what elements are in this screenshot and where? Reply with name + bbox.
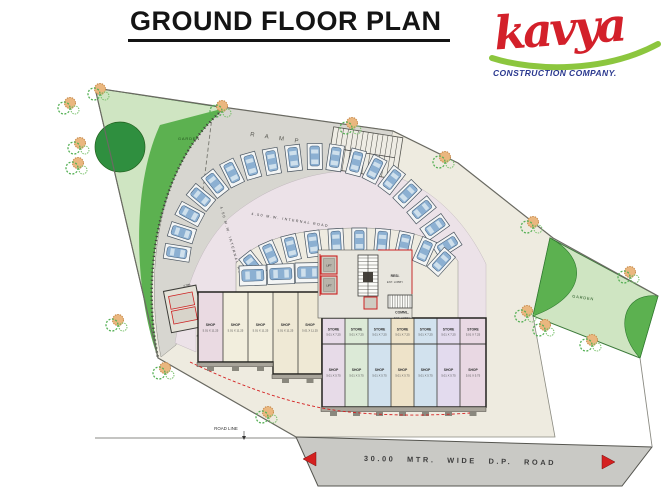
svg-text:5.01 X 5.75: 5.01 X 5.75 xyxy=(441,374,456,378)
tree-icon xyxy=(58,98,79,115)
svg-text:STORE: STORE xyxy=(420,328,432,332)
shop-unit: SHOP 5.01 X 11.25 xyxy=(223,292,248,362)
svg-text:5.01 X 7.25: 5.01 X 7.25 xyxy=(349,333,364,337)
store-unit: STORE 5.01 X 7.25 xyxy=(322,318,345,344)
dp-road: 30.00 MTR. WIDE D.P. ROAD xyxy=(296,437,652,486)
parking-stall xyxy=(239,265,267,286)
shop-unit: SHOP 5.01 X 5.75 xyxy=(345,344,368,407)
tree-icon xyxy=(106,315,127,332)
svg-text:STORE: STORE xyxy=(374,328,386,332)
svg-text:5.01 X 7.25: 5.01 X 7.25 xyxy=(466,333,481,337)
shop-unit: SHOP 5.01 X 11.25 xyxy=(273,292,298,374)
svg-text:SHOP: SHOP xyxy=(421,368,431,372)
shop-unit: SHOP 5.01 X 5.75 xyxy=(391,344,414,407)
company-logo: kavya CONSTRUCTION COMPANY. xyxy=(488,2,664,94)
svg-text:5.01 X 7.25: 5.01 X 7.25 xyxy=(441,333,456,337)
svg-text:5.01 X 11.25: 5.01 X 11.25 xyxy=(228,329,244,333)
shop-unit: SHOP 5.01 X 11.25 xyxy=(198,292,223,362)
shop-unit: SHOP 5.01 X 5.75 xyxy=(437,344,460,407)
shop-unit: SHOP 5.01 X 11.25 xyxy=(248,292,273,362)
staircase-comml xyxy=(388,295,412,308)
building-left-wing: SHOP 5.01 X 11.25 SHOP 5.01 X 11.25 SHOP… xyxy=(198,292,322,374)
resi-lobby-label: RESI. xyxy=(391,274,400,278)
svg-text:5.01 X 7.25: 5.01 X 7.25 xyxy=(418,333,433,337)
svg-text:SHOP: SHOP xyxy=(375,368,385,372)
shop-unit: SHOP 5.01 X 5.75 xyxy=(368,344,391,407)
svg-text:5.01 X 5.75: 5.01 X 5.75 xyxy=(349,374,364,378)
svg-text:SHOP: SHOP xyxy=(352,368,362,372)
floor-plan-page: 30.00 MTR. WIDE D.P. ROAD ROAD LINE xyxy=(0,0,665,492)
parking-row-court xyxy=(239,263,322,286)
svg-text:STORE: STORE xyxy=(467,328,479,332)
garden-left-label: GARDEN xyxy=(178,136,200,141)
lift-label: LIFT xyxy=(326,284,332,288)
svg-text:STORE: STORE xyxy=(351,328,363,332)
svg-text:5.01 X 11.25: 5.01 X 11.25 xyxy=(278,329,294,333)
lift xyxy=(364,297,377,309)
svg-text:SHOP: SHOP xyxy=(329,368,339,372)
svg-text:SHOP: SHOP xyxy=(398,368,408,372)
svg-text:SHOP: SHOP xyxy=(305,323,315,327)
page-title: GROUND FLOOR PLAN xyxy=(128,6,450,42)
logo-tagline: CONSTRUCTION COMPANY. xyxy=(493,68,617,78)
parking-stall xyxy=(307,143,322,169)
comml-lobby-label: ENT. LOBBY xyxy=(394,316,410,320)
svg-text:5.01 X 7.25: 5.01 X 7.25 xyxy=(372,333,387,337)
svg-text:SHOP: SHOP xyxy=(206,323,216,327)
svg-text:5.01 X 5.75: 5.01 X 5.75 xyxy=(372,374,387,378)
core-lobby: LIFT LIFT RESI. ENT. LOBBY COMML. ENT. L… xyxy=(318,250,412,320)
staircase-resi xyxy=(358,255,378,296)
road-line: ROAD LINE xyxy=(95,426,296,440)
comml-lobby-label: COMML. xyxy=(395,311,409,315)
store-unit: STORE 5.01 X 7.25 xyxy=(368,318,391,344)
svg-text:STORE: STORE xyxy=(328,328,340,332)
building-right-wing: STORE 5.01 X 7.25 STORE 5.01 X 7.25 STOR… xyxy=(322,318,486,407)
resi-lobby-label: ENT. LOBBY xyxy=(387,280,403,284)
svg-text:5.01 X 5.75: 5.01 X 5.75 xyxy=(326,374,341,378)
svg-text:5.01 X 7.25: 5.01 X 7.25 xyxy=(326,333,341,337)
svg-text:STORE: STORE xyxy=(397,328,409,332)
svg-text:5.01 X 7.25: 5.01 X 7.25 xyxy=(395,333,410,337)
svg-text:SHOP: SHOP xyxy=(468,368,478,372)
svg-text:SHOP: SHOP xyxy=(231,323,241,327)
svg-text:5.01 X 11.25: 5.01 X 11.25 xyxy=(203,329,219,333)
svg-text:SHOP: SHOP xyxy=(444,368,454,372)
road-line-label: ROAD LINE xyxy=(214,426,238,431)
svg-text:5.01 X 11.25: 5.01 X 11.25 xyxy=(253,329,269,333)
svg-text:5.01 X 5.75: 5.01 X 5.75 xyxy=(466,374,481,378)
tree-icon xyxy=(66,158,87,175)
svg-text:STORE: STORE xyxy=(443,328,455,332)
parking-stall xyxy=(285,144,303,172)
svg-text:5.01 X 11.25: 5.01 X 11.25 xyxy=(302,329,318,333)
store-unit: STORE 5.01 X 7.25 xyxy=(345,318,368,344)
logo-brand-text: kavya xyxy=(492,0,625,59)
svg-text:5.01 X 5.75: 5.01 X 5.75 xyxy=(418,374,433,378)
store-unit: STORE 5.01 X 7.25 xyxy=(391,318,414,344)
store-unit: STORE 5.01 X 7.25 xyxy=(460,318,486,344)
parking-stall xyxy=(267,264,295,285)
lift-label: LIFT xyxy=(326,264,332,268)
tree-icon xyxy=(68,138,89,155)
svg-text:SHOP: SHOP xyxy=(256,323,266,327)
svg-text:5.01 X 5.75: 5.01 X 5.75 xyxy=(395,374,410,378)
shop-unit: SHOP 5.01 X 5.75 xyxy=(460,344,486,407)
store-unit: STORE 5.01 X 7.25 xyxy=(414,318,437,344)
store-unit: STORE 5.01 X 7.25 xyxy=(437,318,460,344)
shop-unit: SHOP 5.01 X 5.75 xyxy=(414,344,437,407)
shop-unit: SHOP 5.01 X 5.75 xyxy=(322,344,345,407)
svg-text:SHOP: SHOP xyxy=(281,323,291,327)
